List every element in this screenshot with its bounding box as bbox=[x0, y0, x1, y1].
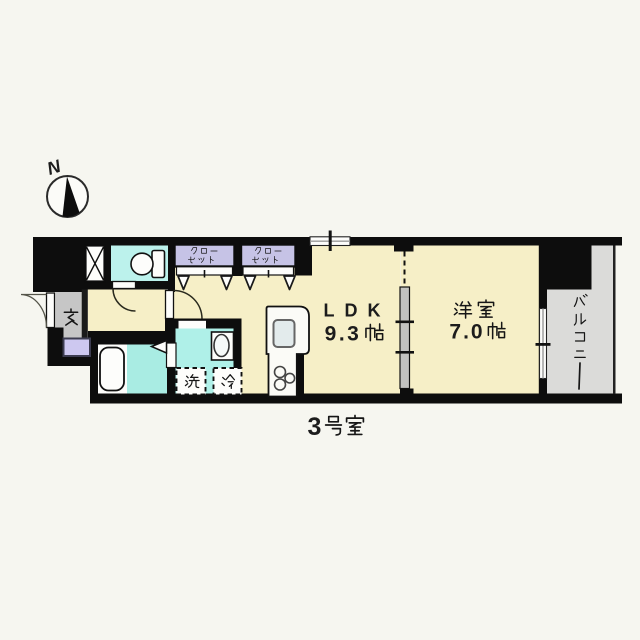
svg-text:LDK: LDK bbox=[324, 301, 391, 321]
svg-text:3: 3 bbox=[308, 413, 322, 441]
svg-text:7.0: 7.0 bbox=[449, 321, 484, 344]
svg-text:9.3: 9.3 bbox=[325, 323, 362, 346]
